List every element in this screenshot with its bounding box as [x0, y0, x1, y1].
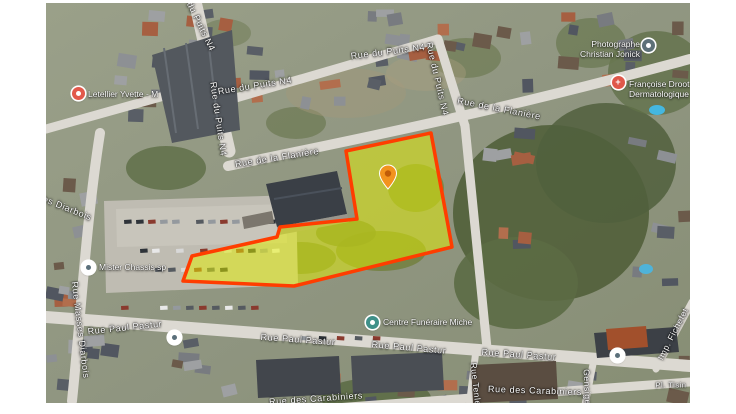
- school-marker[interactable]: [611, 349, 624, 362]
- street-label: Rue des Carabiniers: [488, 385, 582, 397]
- street-label: Rue Paul Pastur: [481, 348, 556, 362]
- centre-funeraire-label[interactable]: Centre Funéraire Miche: [383, 317, 472, 327]
- street-label: Rue du Puits N4: [217, 76, 292, 97]
- letellier-marker[interactable]: [72, 87, 85, 100]
- street-label: Gensige: [582, 369, 592, 403]
- photographe-marker[interactable]: [642, 39, 655, 52]
- photographe-label[interactable]: PhotographeChristian Jonick: [580, 39, 640, 59]
- street-label: Rue Paul Pastur: [371, 340, 446, 356]
- street-label: Rue Tenlem: [469, 362, 483, 403]
- poi-dot-icon: [76, 91, 81, 96]
- medical-cross-icon: +: [615, 78, 620, 87]
- poi-dot-icon: [172, 335, 177, 340]
- mister-chassis-label[interactable]: Mister Chassis sp: [99, 262, 166, 272]
- street-label: Imp. Fichefet: [656, 307, 689, 362]
- transit-marker[interactable]: [168, 331, 181, 344]
- poi-dot-icon: [646, 43, 651, 48]
- dermatologue-label[interactable]: Françoise DrootDermatologique: [629, 79, 689, 99]
- screenshot-canvas: { "map": { "left": 46, "top": 3, "width"…: [0, 0, 736, 414]
- map-label-overlay: Rue du Puits N4Rue du Puits N4Rue du Pui…: [46, 3, 690, 403]
- street-label: Rue de la Flanière: [234, 147, 319, 169]
- poi-dot-icon: [370, 320, 375, 325]
- street-label: Pl. Tisin: [656, 381, 687, 389]
- street-label: Rue Paul Pastur: [260, 333, 335, 347]
- street-label: Rue du Puits N4: [350, 43, 426, 61]
- street-label: Rue Paul Pastur: [87, 320, 163, 337]
- mister-chassis-marker[interactable]: [82, 261, 95, 274]
- poi-dot-icon: [615, 353, 620, 358]
- street-label: Rue du Puits N4: [176, 3, 217, 53]
- street-label: Rue Masses Diarbois: [46, 178, 93, 223]
- street-label: Rue des Carabiniers: [269, 391, 363, 403]
- satellite-map[interactable]: Rue du Puits N4Rue du Puits N4Rue du Pui…: [46, 3, 690, 403]
- centre-funeraire-marker[interactable]: [366, 316, 379, 329]
- letellier-label[interactable]: Letellier Yvette - M: [88, 89, 158, 99]
- street-label: Rue du Puits N4: [424, 41, 450, 116]
- street-label: Rue de la Flanière: [456, 96, 541, 121]
- dermatologue-marker[interactable]: +: [612, 76, 625, 89]
- poi-dot-icon: [86, 265, 91, 270]
